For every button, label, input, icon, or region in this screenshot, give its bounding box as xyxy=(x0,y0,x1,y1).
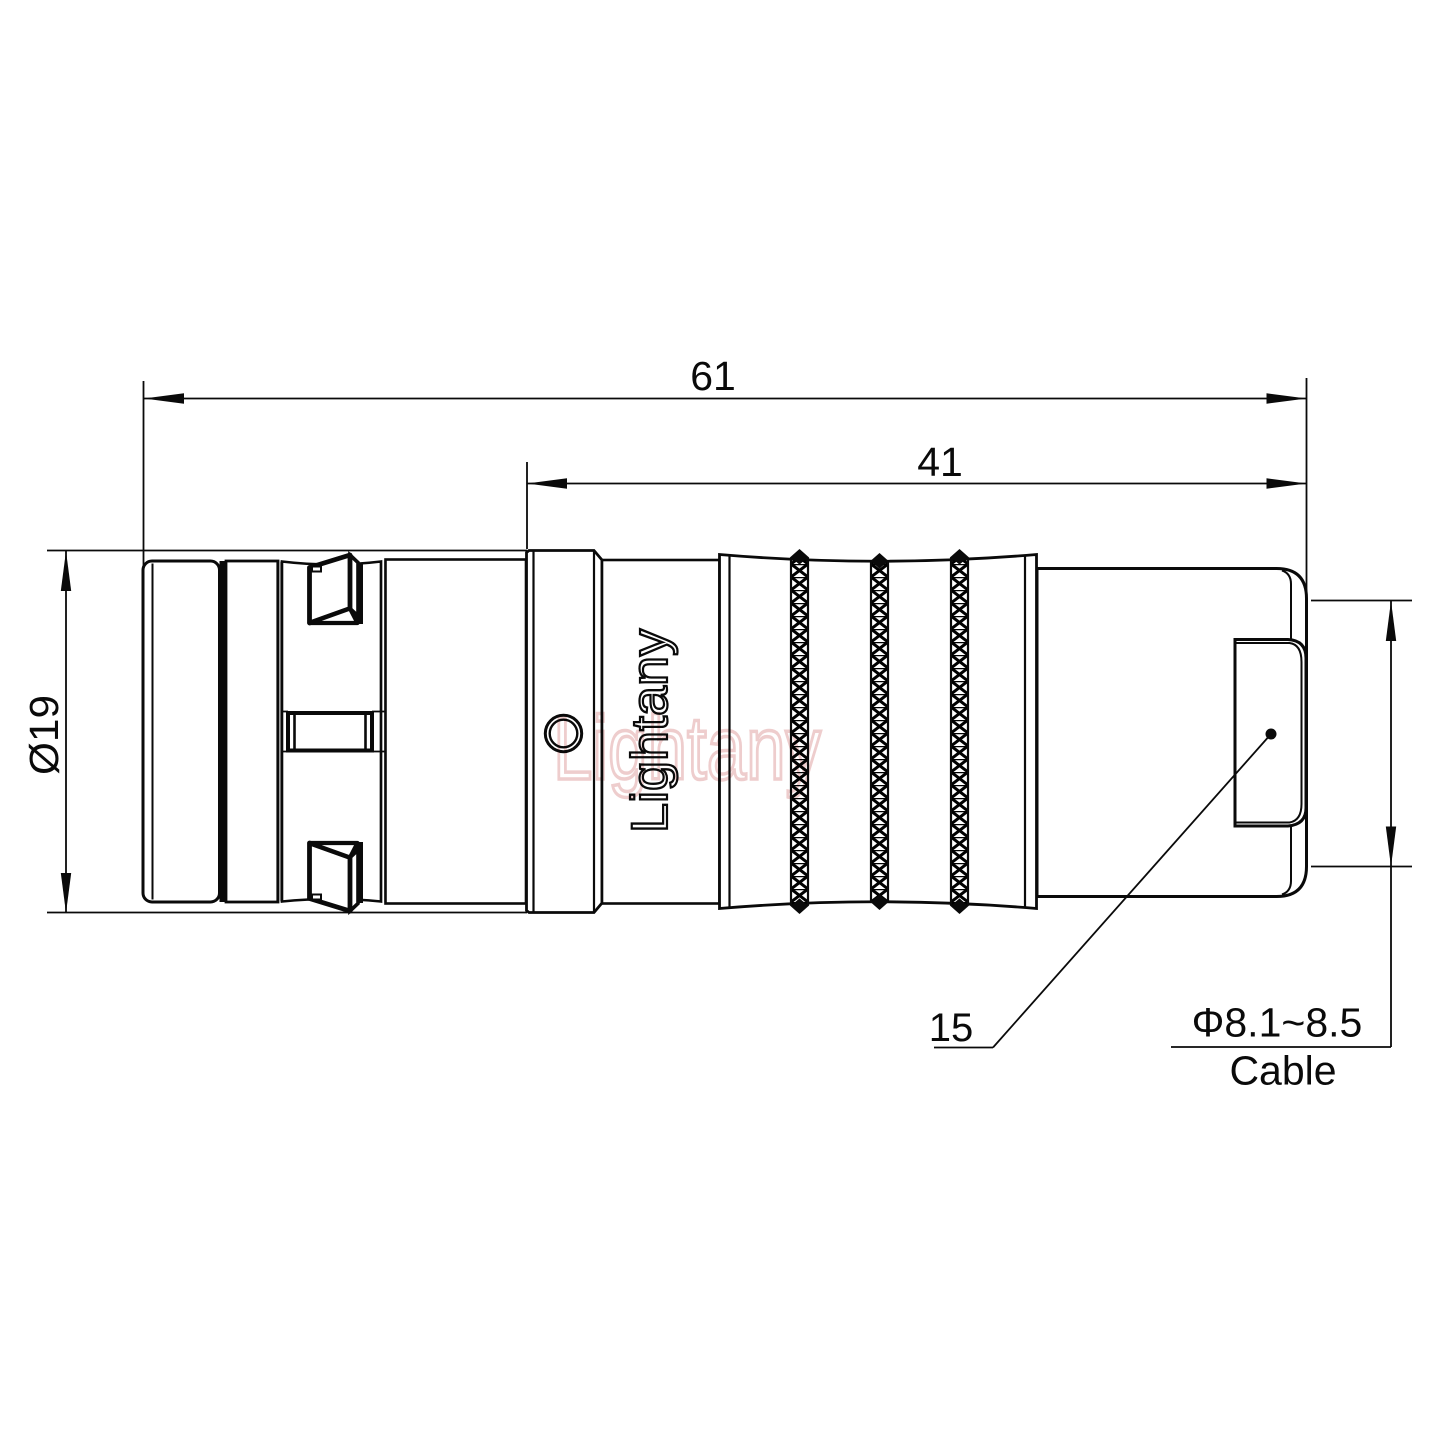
svg-text:41: 41 xyxy=(917,439,963,485)
svg-text:61: 61 xyxy=(690,353,736,399)
svg-text:15: 15 xyxy=(929,1006,974,1050)
svg-text:Φ8.1~8.5: Φ8.1~8.5 xyxy=(1192,1000,1363,1046)
svg-text:Cable: Cable xyxy=(1229,1048,1336,1094)
svg-text:Lightany: Lightany xyxy=(553,699,821,799)
svg-text:Ø19: Ø19 xyxy=(21,695,67,775)
